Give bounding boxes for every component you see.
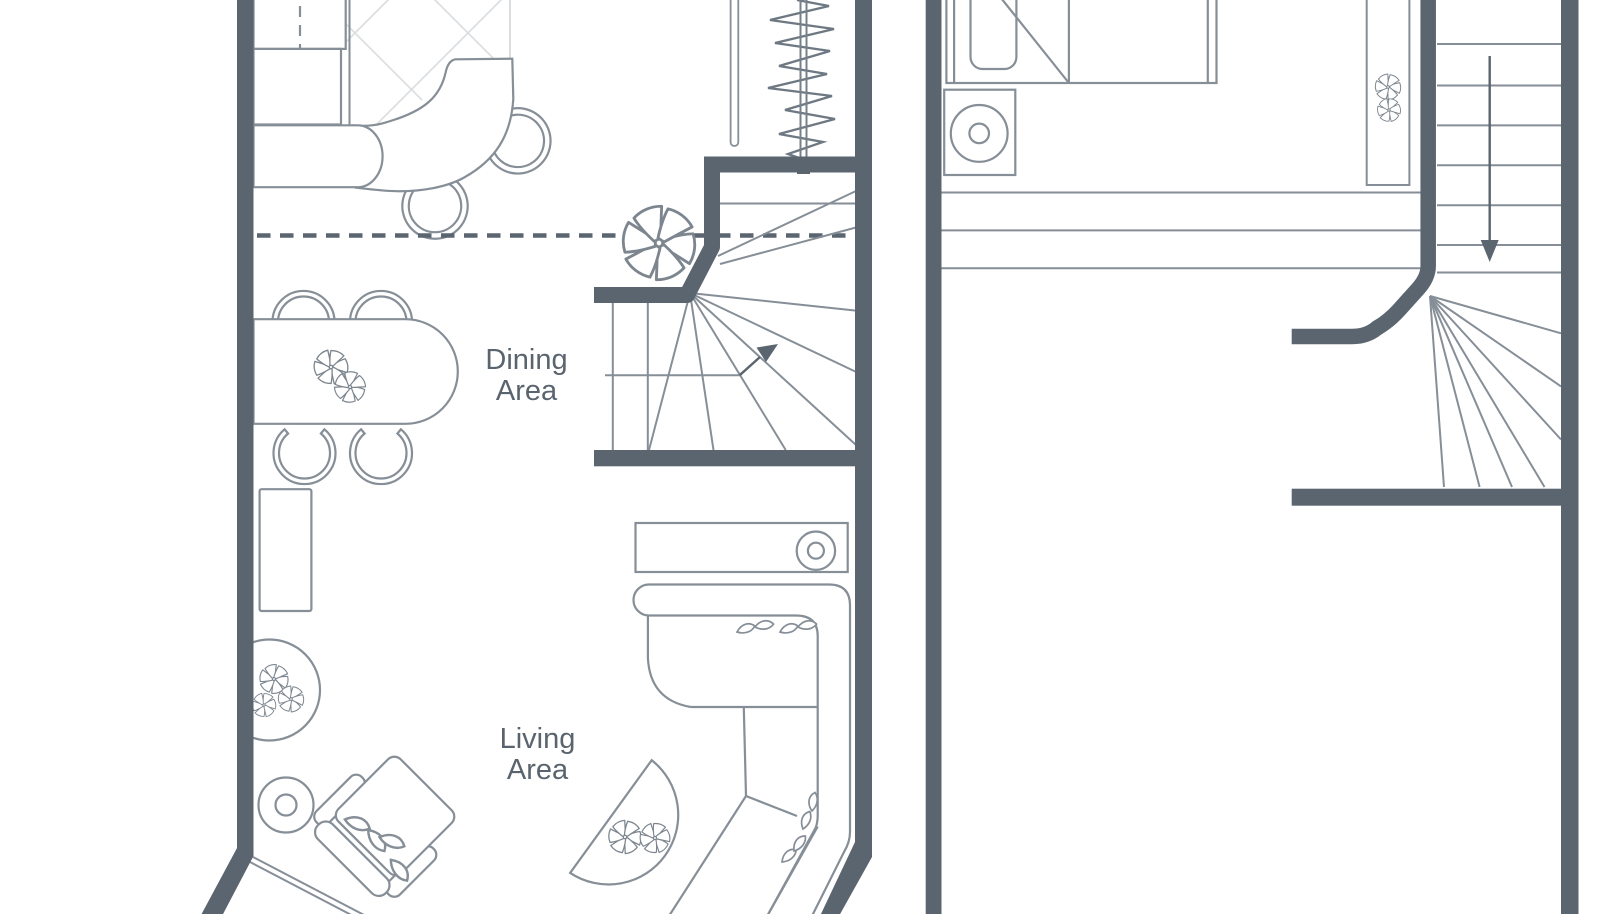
svg-text:Dining: Dining <box>485 344 567 376</box>
svg-text:Area: Area <box>496 375 558 407</box>
svg-text:Living: Living <box>500 723 576 755</box>
svg-text:Area: Area <box>507 754 569 786</box>
